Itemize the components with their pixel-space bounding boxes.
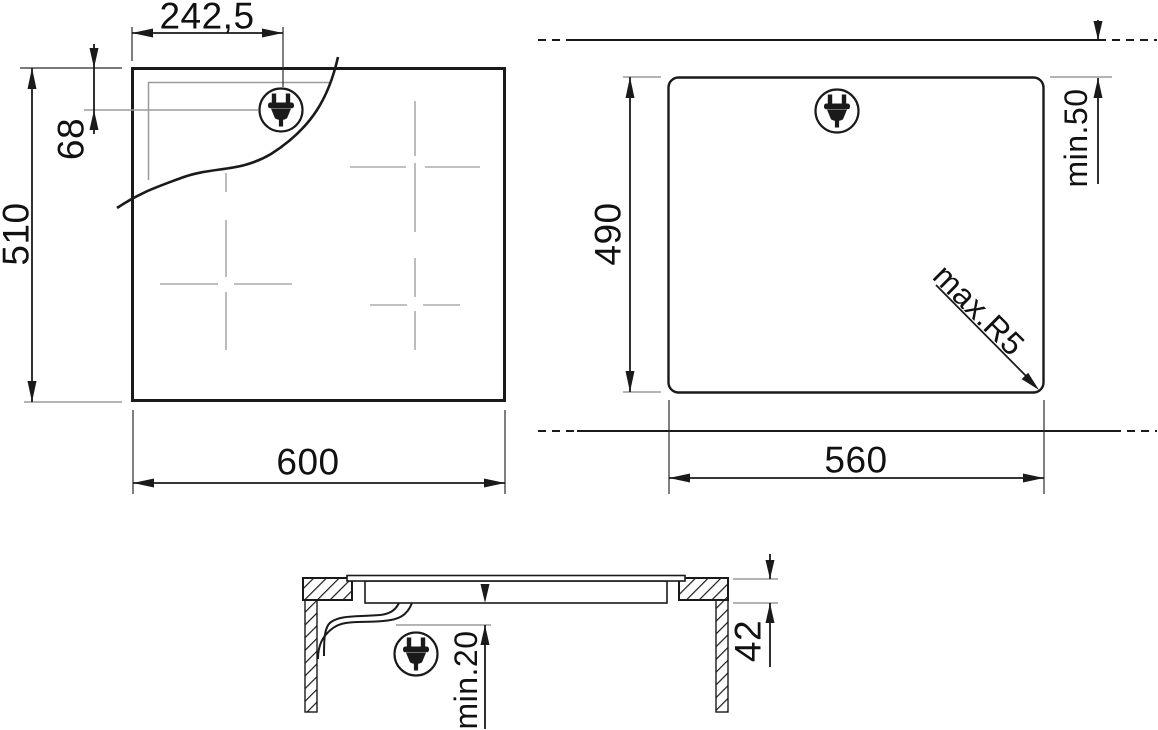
dim-cutout-width-label: 560 — [824, 442, 887, 479]
dimension-arrow — [766, 560, 775, 579]
cabinet-side-left — [305, 600, 317, 712]
dimension-arrow — [1094, 21, 1103, 40]
hob-body-section — [365, 581, 667, 603]
dimension-arrow — [1094, 78, 1103, 98]
dim-rear-clearance-label: min.50 — [1060, 88, 1092, 187]
dimension-arrow — [28, 68, 37, 89]
side-section-view — [303, 554, 778, 729]
diagram-linework — [0, 0, 1158, 730]
power-plug-icon — [816, 90, 859, 133]
dim-cutout-depth-lines — [623, 77, 661, 392]
dimension-arrow — [626, 77, 635, 98]
worktop-section-left — [303, 578, 352, 600]
dimension-arrow — [90, 48, 99, 68]
power-plug-icon — [260, 89, 303, 132]
dimension-arrow — [262, 29, 283, 38]
dimension-arrow — [669, 474, 690, 483]
hob-outline — [133, 69, 505, 401]
power-plug-icon — [395, 633, 438, 676]
dimension-arrow — [626, 371, 635, 392]
dim-plug-offset-x-label: 242,5 — [159, 0, 254, 35]
dimension-arrow — [132, 29, 153, 38]
dim-depth-label: 510 — [0, 202, 35, 265]
dimension-arrow — [1023, 474, 1044, 483]
installation-diagram: 242,5 68 510 600 490 560 min.50 max.R5 4… — [0, 0, 1158, 730]
dimension-arrow — [484, 479, 505, 488]
dim-cutout-depth-label: 490 — [590, 202, 627, 265]
cutout-outline — [669, 78, 1044, 393]
dim-plug-offset-y-label: 68 — [53, 118, 90, 160]
dim-under-clearance-label: min.20 — [450, 630, 482, 729]
cabinet-side-right — [716, 600, 728, 712]
dim-width-label: 600 — [276, 444, 339, 481]
dimension-arrow — [133, 479, 154, 488]
dim-recess-depth-label: 42 — [730, 620, 767, 662]
dimension-arrow — [28, 381, 37, 402]
worktop-section-right — [679, 578, 728, 600]
hob-top-view — [20, 27, 505, 494]
hob-glass-top — [347, 576, 685, 582]
